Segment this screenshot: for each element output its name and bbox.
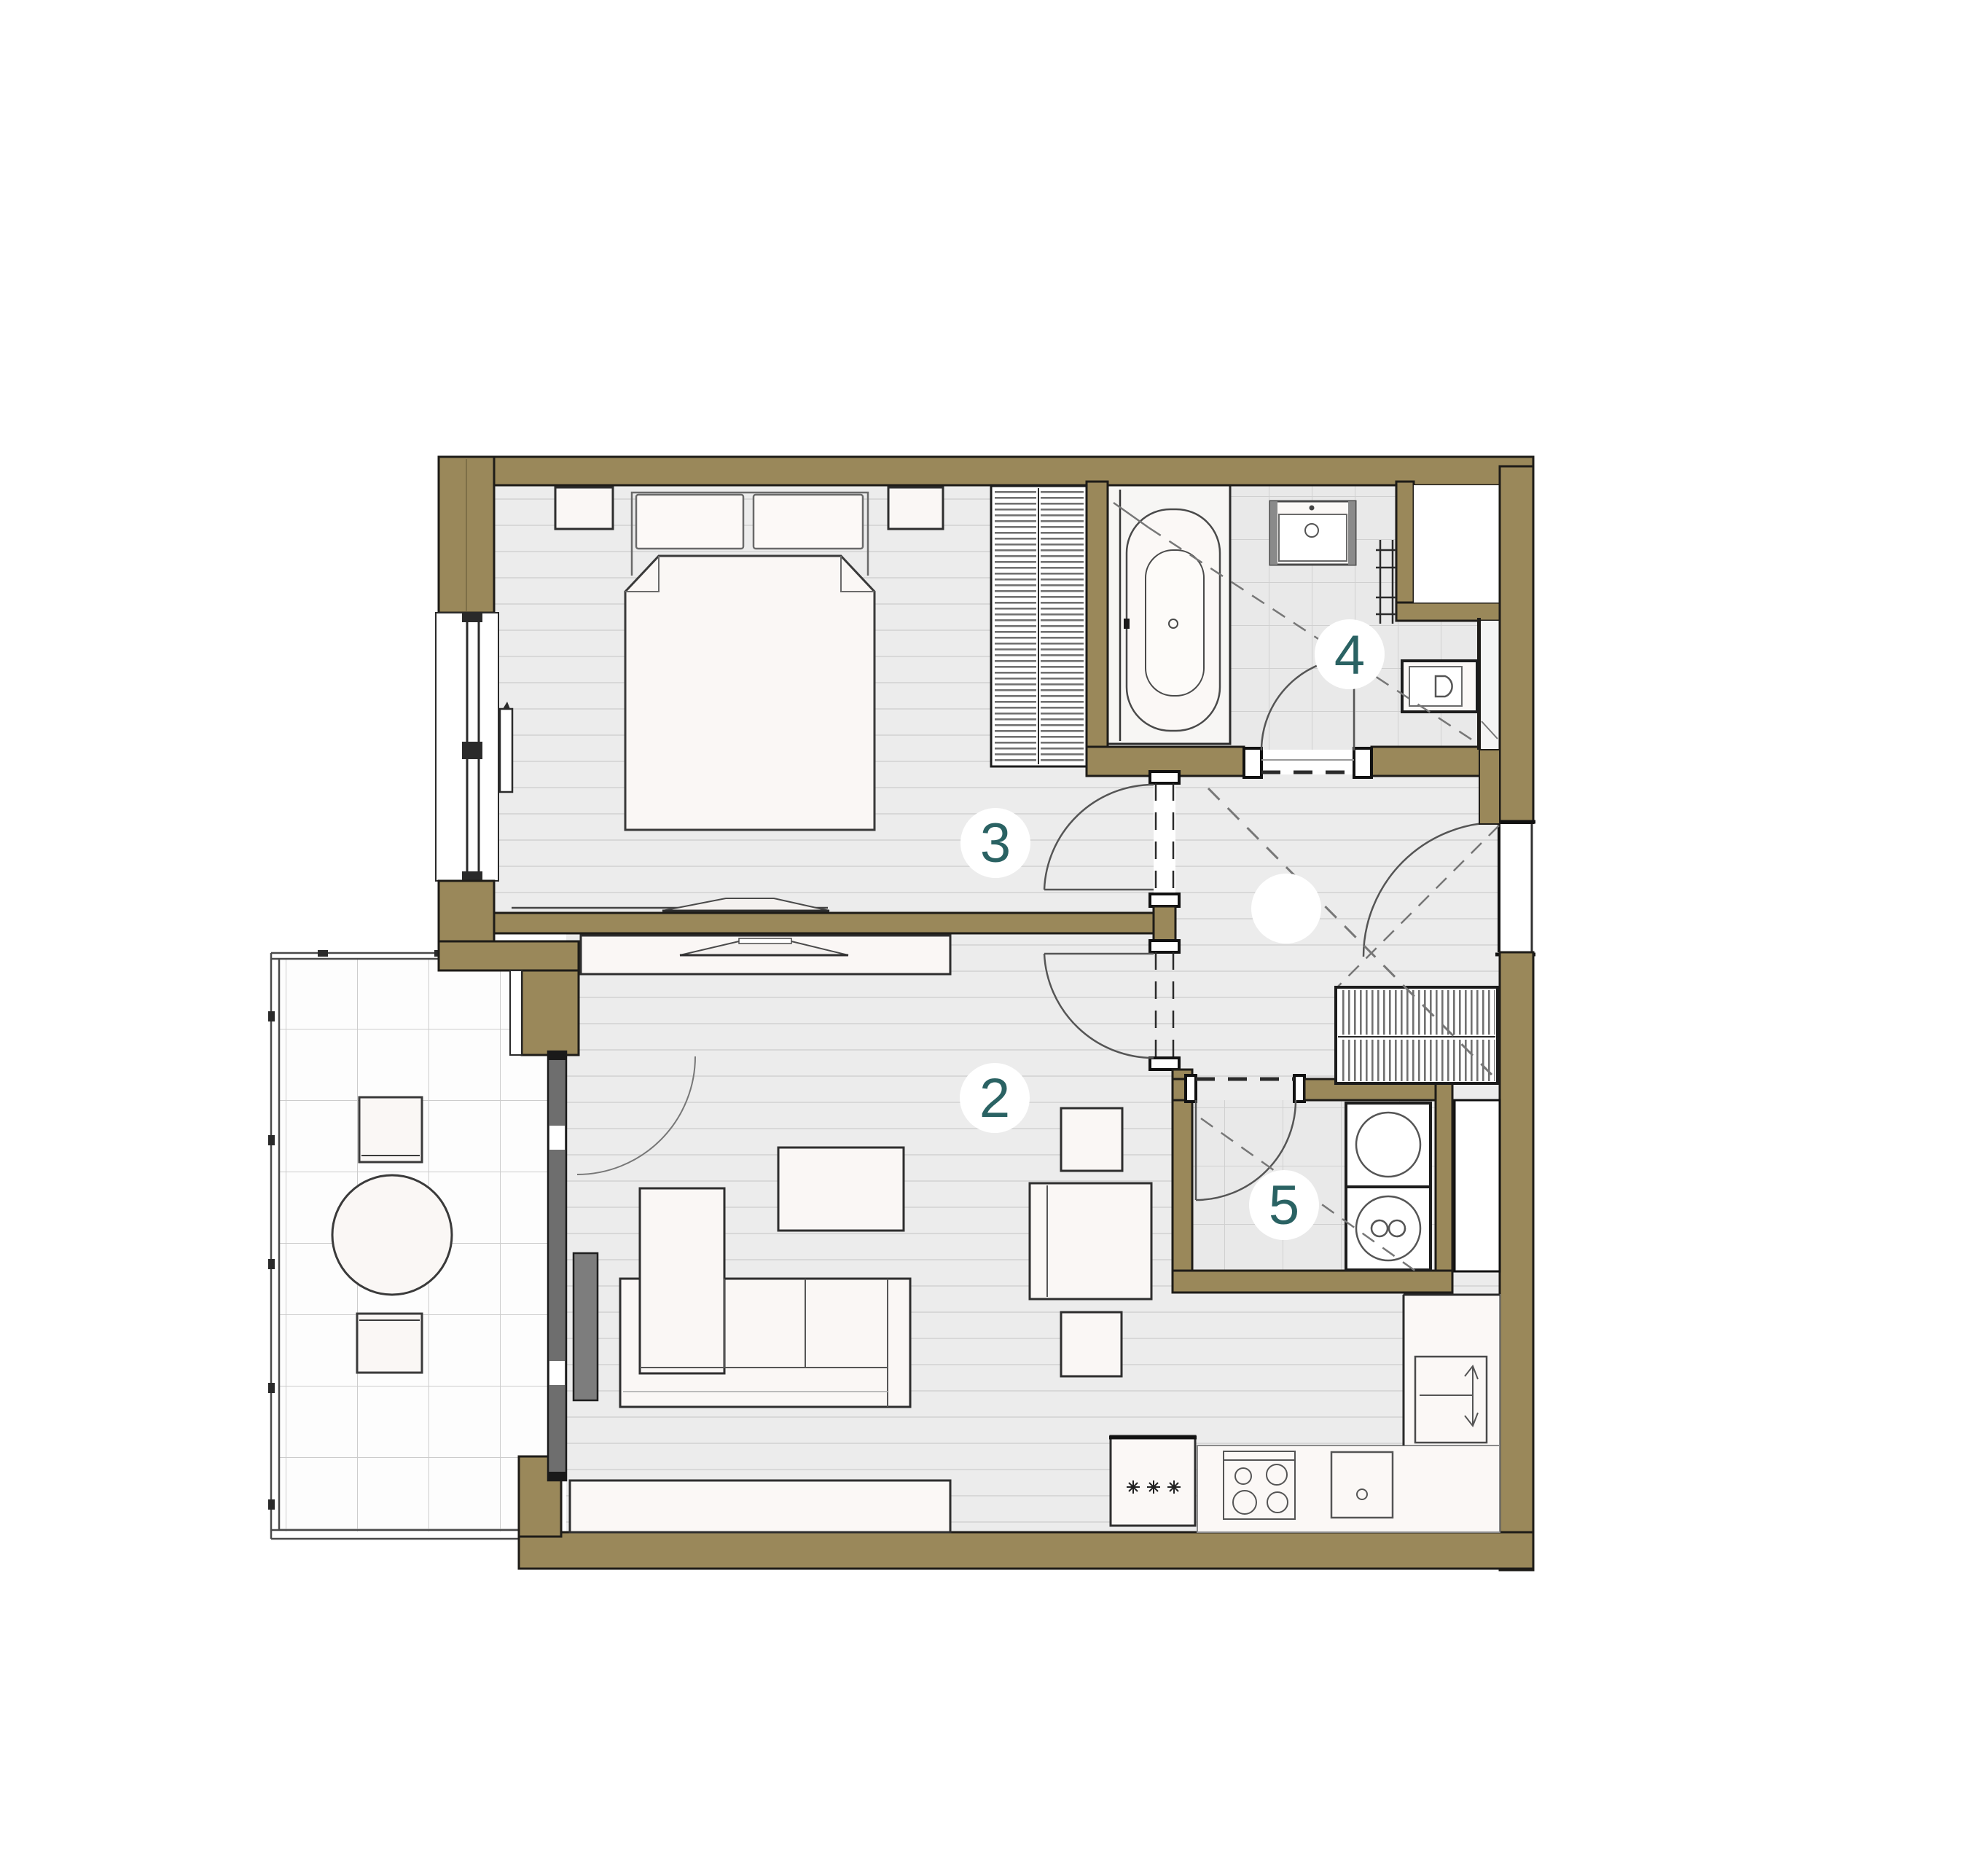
svg-text:2: 2 [979, 1067, 1010, 1129]
svg-text:5: 5 [1269, 1174, 1299, 1236]
svg-text:3: 3 [980, 812, 1011, 874]
svg-text:4: 4 [1334, 624, 1365, 686]
